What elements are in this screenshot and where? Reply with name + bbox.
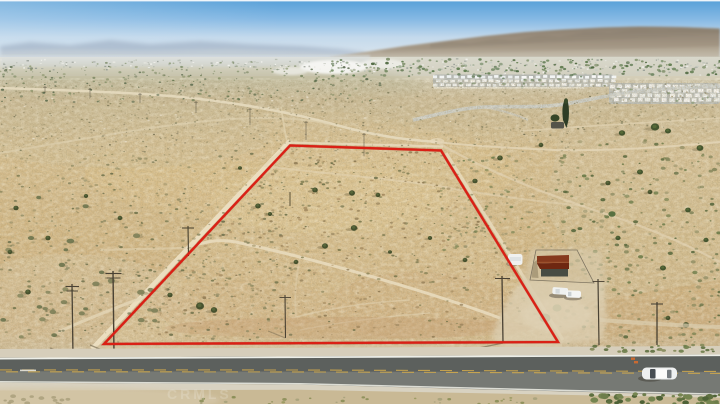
svg-text:CRMLS: CRMLS: [167, 386, 232, 402]
